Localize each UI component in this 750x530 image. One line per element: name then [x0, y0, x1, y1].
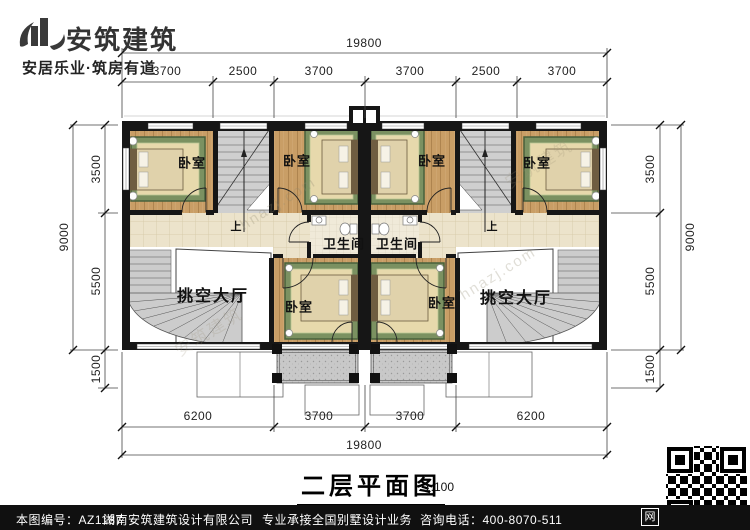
dim-left-segment: 5500 [89, 267, 103, 296]
dim-top-segment: 3700 [548, 64, 577, 78]
dim-top-segment: 2500 [229, 64, 258, 78]
stair-up-label: 上 [487, 218, 498, 234]
room-label-bathroom: 卫生间 [376, 234, 418, 253]
sheet: 安筑建筑 安居乐业·筑房有道 hnazj.com hnazj.com 安筑建筑 … [0, 0, 750, 530]
dim-top-total: 19800 [346, 36, 382, 50]
brand-tagline: 安居乐业·筑房有道 [22, 57, 156, 78]
dim-left-total: 9000 [57, 223, 71, 252]
chimney [349, 106, 380, 127]
phone-number: 咨询电话：400-8070-511 [420, 511, 562, 528]
brand-name: 安筑建筑 [66, 20, 178, 57]
dim-bottom-total: 19800 [346, 438, 382, 452]
room-label-bedroom: 卧室 [418, 151, 446, 170]
dim-right-total: 9000 [683, 223, 697, 252]
dim-top-segment: 3700 [305, 64, 334, 78]
room-label-bedroom: 卧室 [178, 153, 206, 172]
dim-right-segment: 3500 [643, 155, 657, 184]
web-icon: 网 [641, 508, 659, 526]
dim-bottom-segment: 3700 [305, 409, 334, 423]
room-label-void-hall: 挑空大厅 [177, 282, 249, 306]
room-label-bedroom: 卧室 [428, 293, 456, 312]
drawing-title: 二层平面图 [297, 466, 445, 507]
dim-top-segment: 3700 [396, 64, 425, 78]
stair-up-label: 上 [231, 218, 242, 234]
dim-left-segment: 3500 [89, 155, 103, 184]
company-name: 湖南安筑建筑设计有限公司 [103, 511, 253, 528]
room-label-void-hall: 挑空大厅 [480, 284, 552, 308]
dim-right-segment: 5500 [643, 267, 657, 296]
dim-top-segment: 3700 [153, 64, 182, 78]
drawing-scale: 1:100 [424, 480, 454, 494]
room-label-bedroom: 卧室 [285, 297, 313, 316]
dim-bottom-segment: 6200 [184, 409, 213, 423]
brand-logo-icon [20, 18, 65, 50]
room-label-bedroom: 卧室 [283, 151, 311, 170]
service-slogan: 专业承接全国别墅设计业务 [262, 511, 412, 528]
room-label-bedroom: 卧室 [523, 153, 551, 172]
dim-top-segment: 2500 [472, 64, 501, 78]
dim-bottom-segment: 6200 [517, 409, 546, 423]
dim-right-segment: 1500 [643, 355, 657, 384]
dim-bottom-segment: 3700 [396, 409, 425, 423]
room-label-bathroom: 卫生间 [323, 234, 365, 253]
dim-left-segment: 1500 [89, 355, 103, 384]
